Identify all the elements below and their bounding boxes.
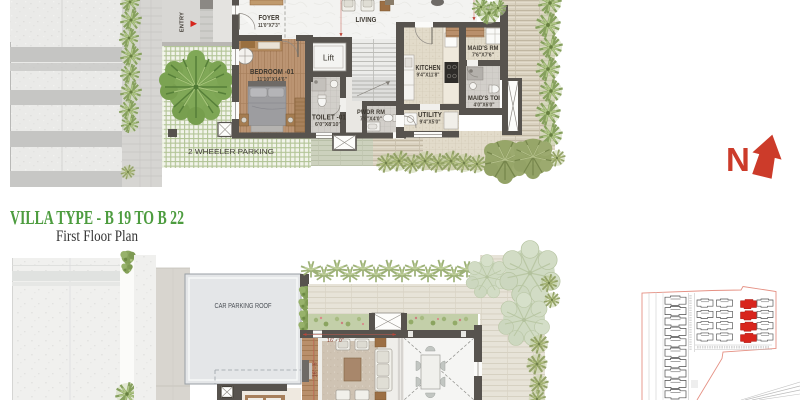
svg-text:ENTRY: ENTRY: [180, 12, 186, 32]
svg-text:TOILET -01: TOILET -01: [312, 115, 346, 122]
svg-text:2 WHEELER PARKING: 2 WHEELER PARKING: [188, 147, 274, 156]
svg-text:KITCHEN: KITCHEN: [416, 65, 441, 72]
svg-text:Lift: Lift: [323, 53, 335, 63]
svg-text:N: N: [726, 141, 750, 178]
svg-text:11'0"X7'3": 11'0"X7'3": [258, 23, 280, 29]
svg-text:MAID'S TOI: MAID'S TOI: [468, 95, 500, 102]
svg-text:VILLA TYPE - B 19 TO B 22: VILLA TYPE - B 19 TO B 22: [10, 207, 184, 229]
svg-text:11'10"X14'6": 11'10"X14'6": [257, 77, 287, 83]
svg-text:First Floor Plan: First Floor Plan: [56, 228, 138, 245]
svg-text:7'6"X4'0": 7'6"X4'0": [360, 117, 382, 123]
svg-text:CAR PARKING ROOF: CAR PARKING ROOF: [215, 303, 272, 310]
svg-text:BEDROOM -01: BEDROOM -01: [250, 69, 294, 76]
svg-text:16' - 0": 16' - 0": [327, 338, 344, 344]
svg-text:6'0"X8'10": 6'0"X8'10": [315, 122, 341, 128]
svg-text:9'4"X11'8": 9'4"X11'8": [417, 73, 440, 79]
svg-text:LIVING: LIVING: [356, 17, 377, 24]
svg-text:16' - 6": 16' - 6": [313, 361, 319, 378]
svg-text:PWDR RM: PWDR RM: [357, 109, 385, 116]
svg-text:MAID'S RM: MAID'S RM: [468, 45, 499, 52]
svg-text:FOYER: FOYER: [259, 15, 280, 22]
svg-text:9'4"X5'0": 9'4"X5'0": [420, 120, 441, 126]
svg-text:4'0"X6'0": 4'0"X6'0": [474, 103, 495, 109]
svg-text:UTILITY: UTILITY: [418, 112, 442, 119]
svg-text:7'6"X7'6": 7'6"X7'6": [472, 53, 494, 59]
